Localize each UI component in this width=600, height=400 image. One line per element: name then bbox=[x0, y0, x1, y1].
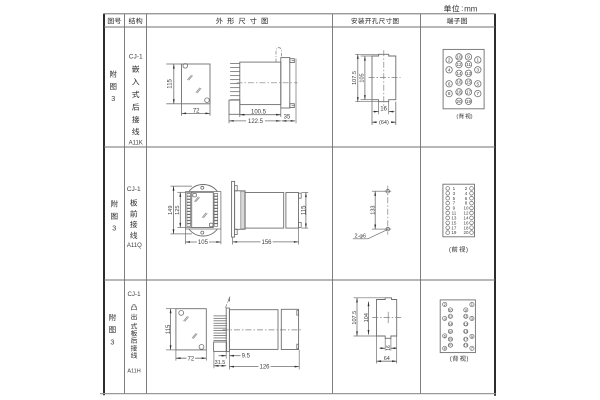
svg-text:3: 3 bbox=[477, 67, 480, 72]
svg-text:3: 3 bbox=[111, 94, 115, 103]
svg-text:16: 16 bbox=[380, 107, 387, 113]
svg-text:(: ( bbox=[456, 114, 458, 120]
svg-text:mm: mm bbox=[464, 4, 478, 13]
svg-text:11: 11 bbox=[466, 62, 471, 67]
svg-text:2-φ6: 2-φ6 bbox=[355, 233, 367, 239]
svg-text::: : bbox=[461, 4, 463, 13]
svg-text:72: 72 bbox=[188, 356, 195, 362]
svg-text:13: 13 bbox=[464, 321, 469, 326]
svg-text:20: 20 bbox=[448, 343, 453, 348]
svg-text:19: 19 bbox=[451, 230, 457, 235]
svg-text:6: 6 bbox=[448, 81, 451, 86]
svg-text:CJ-1: CJ-1 bbox=[127, 186, 141, 193]
svg-text:(: ( bbox=[450, 356, 453, 363]
svg-text:17: 17 bbox=[464, 337, 469, 342]
svg-text:72: 72 bbox=[193, 108, 200, 114]
svg-text:A11H: A11H bbox=[127, 368, 140, 374]
svg-text:19: 19 bbox=[466, 99, 472, 104]
svg-text:100.5: 100.5 bbox=[251, 110, 267, 116]
svg-text:104: 104 bbox=[364, 313, 370, 322]
svg-text:20: 20 bbox=[463, 230, 469, 235]
svg-text:CJ-1: CJ-1 bbox=[129, 53, 143, 60]
svg-text:14: 14 bbox=[456, 71, 462, 76]
svg-text:18: 18 bbox=[448, 337, 453, 342]
svg-text:16: 16 bbox=[456, 80, 462, 85]
svg-text:149: 149 bbox=[168, 206, 174, 215]
svg-text:15: 15 bbox=[466, 80, 472, 85]
svg-text:107.5: 107.5 bbox=[352, 71, 358, 85]
svg-text:105: 105 bbox=[198, 240, 209, 246]
svg-text:): ) bbox=[466, 246, 468, 253]
svg-text:12: 12 bbox=[456, 62, 462, 67]
svg-text:17: 17 bbox=[466, 90, 472, 95]
svg-text:13: 13 bbox=[466, 71, 472, 76]
svg-text:125: 125 bbox=[175, 206, 181, 215]
svg-text:31.5: 31.5 bbox=[215, 360, 226, 366]
svg-text:15: 15 bbox=[464, 329, 469, 334]
svg-text:14: 14 bbox=[448, 321, 453, 326]
svg-text:115: 115 bbox=[301, 205, 307, 215]
svg-text:9: 9 bbox=[467, 55, 470, 60]
svg-text:7: 7 bbox=[477, 91, 480, 96]
svg-text:A11Q: A11Q bbox=[127, 243, 142, 249]
svg-text:115: 115 bbox=[166, 324, 172, 334]
svg-text:35: 35 bbox=[284, 115, 291, 121]
svg-text:3: 3 bbox=[112, 224, 116, 233]
svg-text:10: 10 bbox=[448, 307, 453, 312]
svg-text:20: 20 bbox=[456, 99, 462, 104]
svg-text:): ) bbox=[471, 114, 473, 120]
svg-text:126: 126 bbox=[259, 365, 270, 371]
svg-text:156: 156 bbox=[261, 240, 272, 246]
svg-text:16: 16 bbox=[448, 329, 453, 334]
svg-text:8: 8 bbox=[448, 91, 451, 96]
svg-text:4: 4 bbox=[448, 67, 451, 72]
svg-text:10: 10 bbox=[456, 55, 462, 60]
svg-text:105: 105 bbox=[360, 73, 366, 82]
svg-text:12: 12 bbox=[448, 314, 453, 319]
svg-text:107.5: 107.5 bbox=[352, 311, 358, 325]
svg-text:122.5: 122.5 bbox=[248, 119, 264, 125]
svg-text:): ) bbox=[466, 356, 468, 363]
svg-text:1: 1 bbox=[477, 58, 480, 63]
svg-text:(64): (64) bbox=[379, 120, 389, 126]
svg-text:CJ-1: CJ-1 bbox=[127, 291, 141, 298]
svg-text:133: 133 bbox=[371, 206, 377, 215]
svg-text:A11K: A11K bbox=[129, 141, 143, 147]
svg-text:19: 19 bbox=[464, 343, 469, 348]
svg-text:3: 3 bbox=[110, 337, 114, 346]
svg-text:18: 18 bbox=[456, 90, 462, 95]
svg-text:115: 115 bbox=[168, 78, 174, 88]
svg-text:64: 64 bbox=[384, 356, 390, 362]
svg-text:2: 2 bbox=[448, 58, 451, 63]
svg-text:9.5: 9.5 bbox=[242, 354, 251, 360]
svg-text:5: 5 bbox=[477, 81, 480, 86]
svg-text:(: ( bbox=[449, 246, 452, 253]
svg-text:16: 16 bbox=[386, 345, 392, 351]
